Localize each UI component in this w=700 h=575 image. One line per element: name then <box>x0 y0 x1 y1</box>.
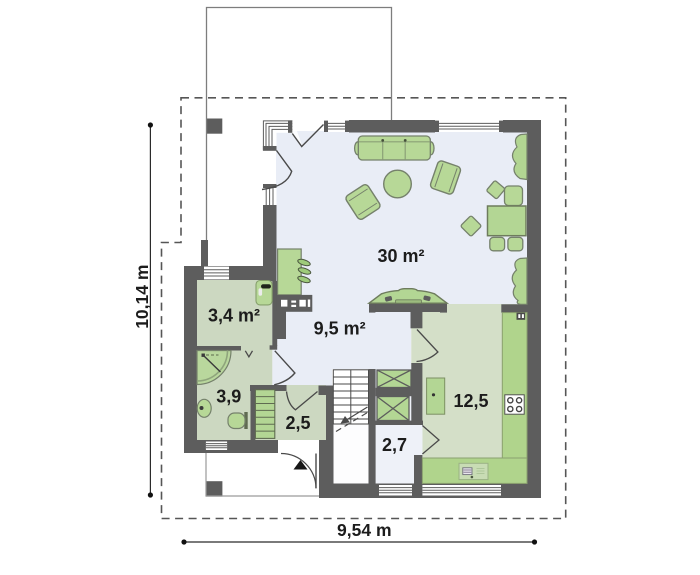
svg-text:9,54 m: 9,54 m <box>337 520 391 540</box>
svg-text:3,9: 3,9 <box>216 387 241 407</box>
svg-text:30 m²: 30 m² <box>377 246 424 266</box>
svg-text:2,7: 2,7 <box>382 435 407 455</box>
svg-text:2,5: 2,5 <box>285 413 310 433</box>
svg-text:10,14 m: 10,14 m <box>132 265 152 329</box>
svg-text:3,4 m²: 3,4 m² <box>208 306 260 326</box>
svg-text:9,5 m²: 9,5 m² <box>314 319 366 339</box>
svg-text:12,5: 12,5 <box>453 391 488 411</box>
